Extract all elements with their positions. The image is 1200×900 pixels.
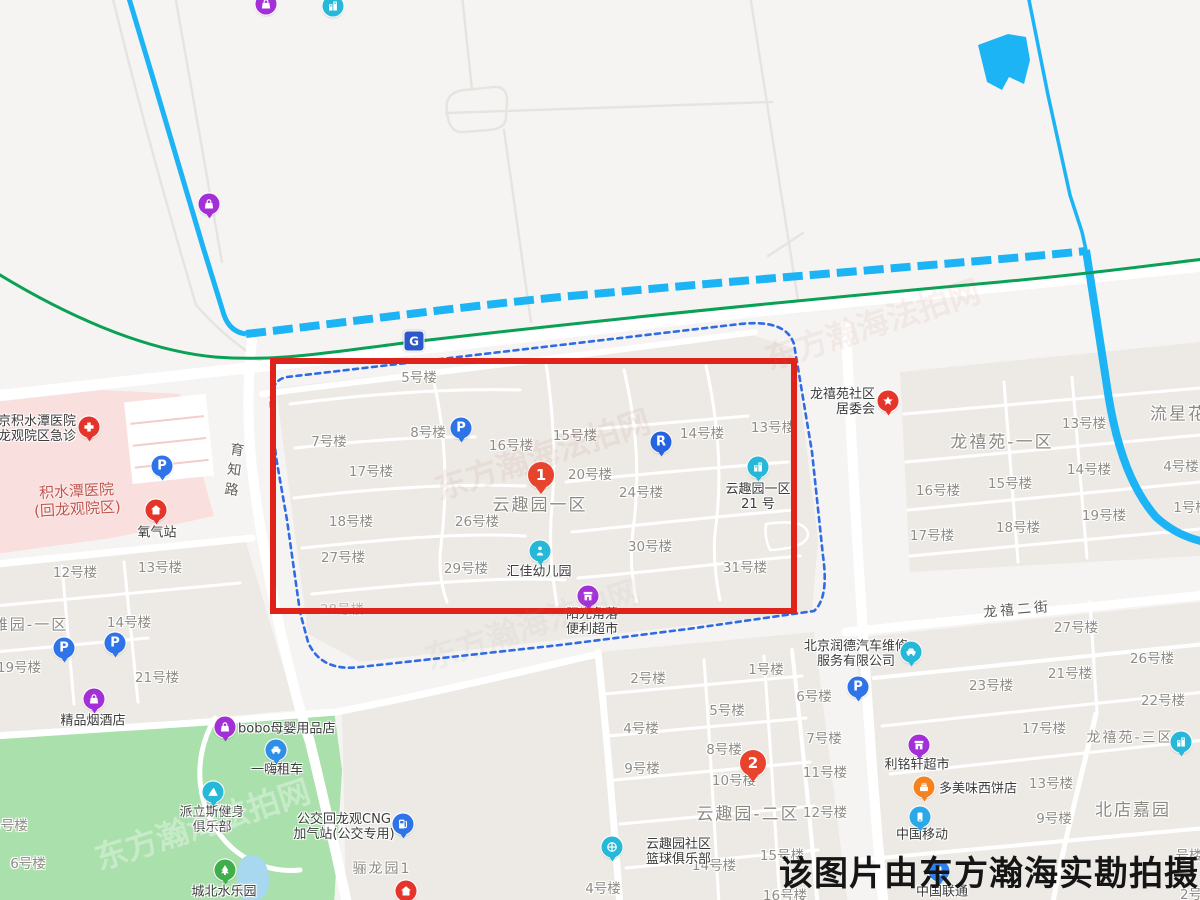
area-label: 龙禧苑-三区 bbox=[1086, 727, 1173, 747]
bakery-marker-label: 多美味西饼店 bbox=[939, 782, 1017, 797]
parking-marker-east-icon: P bbox=[848, 677, 869, 698]
basketball-club-marker[interactable] bbox=[602, 837, 623, 858]
tobacco-shop-marker-icon bbox=[84, 689, 105, 710]
highlight-red-box bbox=[270, 358, 797, 614]
poi-marker-top-edge[interactable] bbox=[323, 0, 344, 17]
china-mobile-marker[interactable] bbox=[910, 807, 931, 828]
hospital-parking-marker[interactable]: P bbox=[152, 456, 173, 477]
cng-station-marker-label: 公交回龙观CNG加气站(公交专用) bbox=[293, 812, 394, 842]
oxygen-station-marker[interactable] bbox=[146, 500, 167, 521]
building-label: 19号楼 bbox=[0, 656, 41, 676]
liminxuan-market-marker-icon bbox=[909, 735, 930, 756]
building-label: 6号楼 bbox=[796, 685, 832, 705]
auto-repair-marker-label: 北京润德汽车维修服务有限公司 bbox=[804, 639, 908, 669]
water-park-marker-icon bbox=[215, 860, 236, 881]
building-label: 6号楼 bbox=[10, 852, 46, 872]
auto-repair-marker-icon bbox=[901, 642, 922, 663]
committee-star-marker-label: 龙禧苑社区居委会 bbox=[810, 387, 875, 417]
building-label: 5号楼 bbox=[709, 699, 745, 719]
building-label: 26号楼 bbox=[1130, 647, 1174, 667]
highway-g-badge: G bbox=[404, 331, 425, 352]
parking-marker-west-1-icon: P bbox=[54, 638, 75, 659]
china-mobile-marker-icon bbox=[910, 807, 931, 828]
building-label: 4号楼 bbox=[1163, 455, 1199, 475]
building-label: 21号楼 bbox=[1048, 662, 1092, 682]
building-label: 8号楼 bbox=[706, 738, 742, 758]
longxiyuan3-marker-icon bbox=[1171, 732, 1192, 753]
gym-marker[interactable] bbox=[203, 782, 224, 803]
bobo-shop-marker-icon bbox=[215, 717, 236, 738]
home-marker-south-icon bbox=[396, 881, 417, 900]
building-label: 1号楼 bbox=[748, 658, 784, 678]
building-label: 4号楼 bbox=[623, 717, 659, 737]
building-label: 17号楼 bbox=[1022, 717, 1066, 737]
basketball-club-marker-label: 云趣园社区篮球俱乐部 bbox=[646, 837, 711, 867]
home-marker-south[interactable] bbox=[396, 881, 417, 900]
building-label: 19号楼 bbox=[1082, 504, 1126, 524]
area-label: 云趣园-二区 bbox=[696, 800, 799, 825]
building-label: 4号楼 bbox=[585, 877, 621, 897]
area-label: 骊龙园1 bbox=[353, 858, 412, 878]
building-label: 16号楼 bbox=[916, 479, 960, 499]
building-label: 23号楼 bbox=[969, 674, 1013, 694]
parking-marker-west-2-icon: P bbox=[105, 633, 126, 654]
building-label: 12号楼 bbox=[53, 561, 97, 581]
building-label: 15号楼 bbox=[988, 472, 1032, 492]
building-label: 11号楼 bbox=[803, 761, 847, 781]
area-label: 流星花园 bbox=[1150, 400, 1200, 425]
building-label: 2号楼 bbox=[630, 667, 666, 687]
building-label: 13号楼 bbox=[138, 556, 182, 576]
bakery-marker-icon bbox=[914, 777, 935, 798]
poi-marker-top-edge-icon bbox=[323, 0, 344, 17]
route-pin-2[interactable]: 2 bbox=[740, 750, 766, 776]
building-label: 9号楼 bbox=[624, 757, 660, 777]
auto-repair-marker[interactable] bbox=[901, 642, 922, 663]
cng-station-marker[interactable] bbox=[393, 814, 414, 835]
building-label: 27号楼 bbox=[1054, 616, 1098, 636]
car-rental-marker-icon bbox=[266, 740, 287, 761]
parking-marker-east[interactable]: P bbox=[848, 677, 869, 698]
basketball-club-marker-icon bbox=[602, 837, 623, 858]
liminxuan-market-marker[interactable] bbox=[909, 735, 930, 756]
building-label: 9号楼 bbox=[1036, 807, 1072, 827]
shop-marker-northwest-icon bbox=[199, 194, 220, 215]
gym-marker-icon bbox=[203, 782, 224, 803]
hospital-emergency-marker-label: 北京积水潭医院回龙观院区急诊 bbox=[0, 414, 76, 444]
hospital-parking-marker-icon: P bbox=[152, 456, 173, 477]
oxygen-station-marker-icon bbox=[146, 500, 167, 521]
longxiyuan3-marker[interactable] bbox=[1171, 732, 1192, 753]
hospital-emergency-marker-icon bbox=[79, 417, 100, 438]
building-label: 1号楼 bbox=[1173, 496, 1200, 516]
shop-marker-northwest[interactable] bbox=[199, 194, 220, 215]
bobo-shop-marker[interactable] bbox=[215, 717, 236, 738]
hospital-area-label: 积水潭医院(回龙观院区) bbox=[33, 480, 121, 520]
building-label: 21号楼 bbox=[135, 666, 179, 686]
car-rental-marker[interactable] bbox=[266, 740, 287, 761]
bakery-marker[interactable] bbox=[914, 777, 935, 798]
building-label: 17号楼 bbox=[910, 524, 954, 544]
building-label: 14号楼 bbox=[1067, 458, 1111, 478]
building-label: 22号楼 bbox=[1141, 689, 1185, 709]
cng-station-marker-icon bbox=[393, 814, 414, 835]
map-canvas[interactable]: G 5号楼7号楼8号楼16号楼15号楼14号楼13号楼17号楼20号楼24号楼1… bbox=[0, 0, 1200, 900]
shop-marker-top-edge-icon bbox=[256, 0, 277, 15]
building-label: 12号楼 bbox=[803, 801, 847, 821]
building-label: 5号楼 bbox=[0, 814, 28, 834]
building-label: 13号楼 bbox=[1029, 772, 1073, 792]
area-label: 风雅园-一区 bbox=[0, 614, 68, 635]
building-label: 14号楼 bbox=[107, 611, 151, 631]
parking-marker-west-1[interactable]: P bbox=[54, 638, 75, 659]
building-label: 7号楼 bbox=[806, 727, 842, 747]
tobacco-shop-marker[interactable] bbox=[84, 689, 105, 710]
photo-watermark: 该图片由东方瀚海实勘拍摄 bbox=[779, 846, 1199, 895]
area-label: 北店嘉园 bbox=[1095, 796, 1171, 821]
parking-marker-west-2[interactable]: P bbox=[105, 633, 126, 654]
shop-marker-top-edge[interactable] bbox=[256, 0, 277, 15]
route-pin-2-icon: 2 bbox=[740, 750, 766, 776]
bobo-shop-marker-label: bobo母婴用品店 bbox=[238, 722, 335, 737]
hospital-emergency-marker[interactable] bbox=[79, 417, 100, 438]
water-park-marker[interactable] bbox=[215, 860, 236, 881]
building-label: 18号楼 bbox=[996, 516, 1040, 536]
area-label: 龙禧苑-一区 bbox=[950, 428, 1053, 453]
committee-star-marker[interactable] bbox=[878, 391, 899, 412]
building-label: 13号楼 bbox=[1062, 412, 1106, 432]
committee-star-marker-icon bbox=[878, 391, 899, 412]
